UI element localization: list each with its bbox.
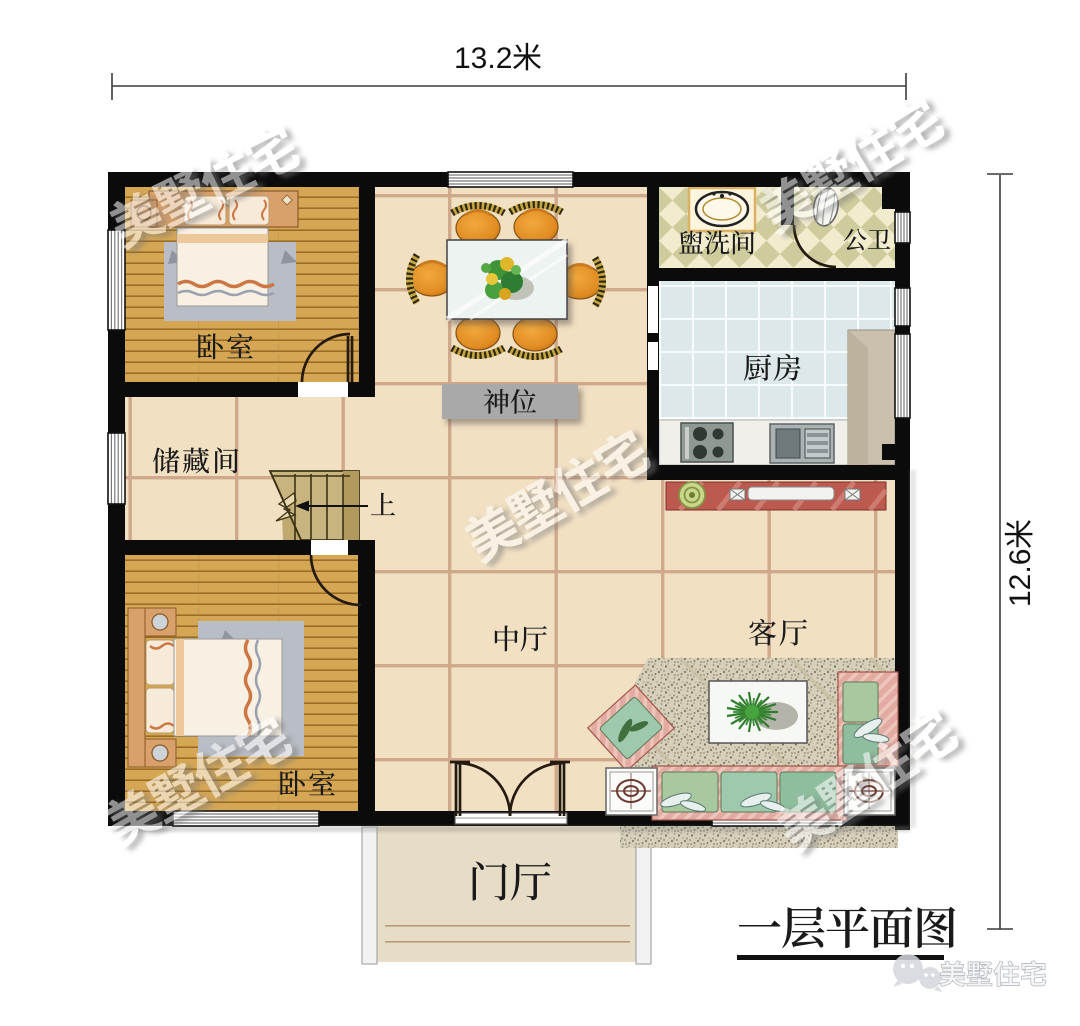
svg-text:12.6: 12.6: [1004, 549, 1037, 607]
svg-text:13.2: 13.2: [454, 42, 512, 75]
